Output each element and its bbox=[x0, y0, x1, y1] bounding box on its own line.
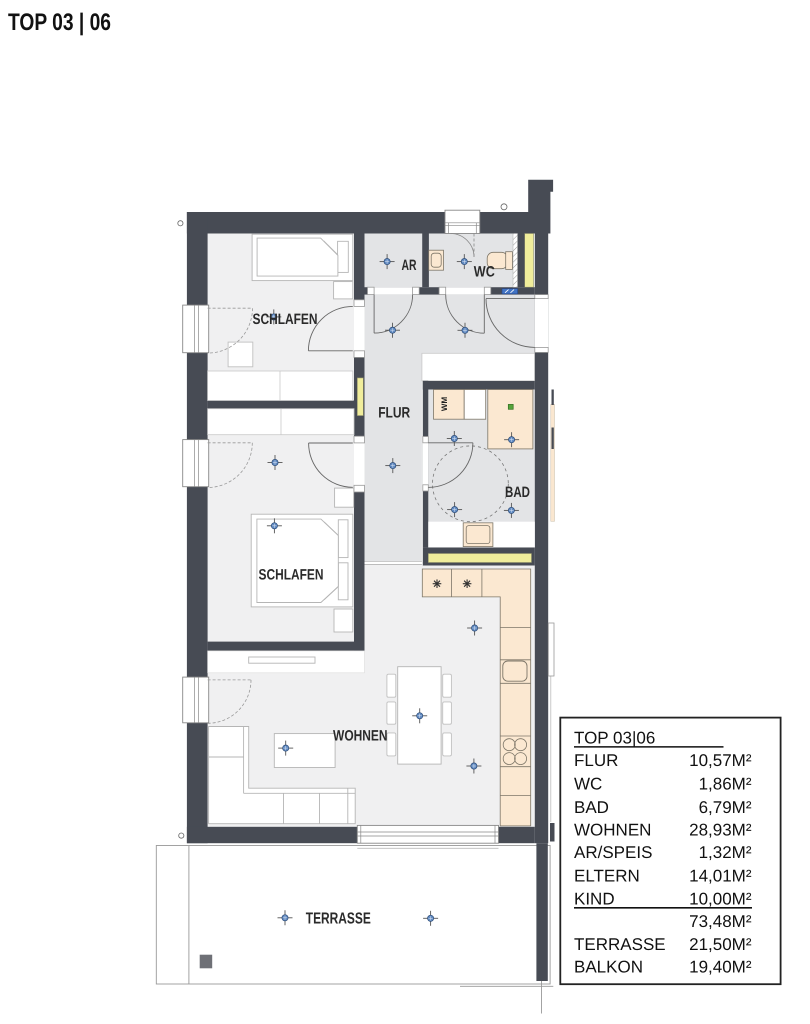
svg-text:10,57M²: 10,57M² bbox=[689, 751, 752, 770]
svg-text:19,40M²: 19,40M² bbox=[689, 958, 752, 977]
svg-text:BAD: BAD bbox=[574, 798, 609, 817]
svg-text:FLUR: FLUR bbox=[574, 751, 618, 770]
svg-text:KIND: KIND bbox=[574, 890, 615, 909]
svg-text:WC: WC bbox=[574, 774, 602, 793]
svg-text:10,00M²: 10,00M² bbox=[689, 890, 752, 909]
svg-text:28,93M²: 28,93M² bbox=[689, 820, 752, 839]
svg-text:6,79M²: 6,79M² bbox=[699, 798, 752, 817]
svg-text:FLUR: FLUR bbox=[378, 404, 410, 421]
svg-text:WM: WM bbox=[440, 397, 449, 412]
svg-text:1,32M²: 1,32M² bbox=[699, 843, 752, 862]
svg-text:TOP 03|06: TOP 03|06 bbox=[574, 728, 655, 747]
svg-text:AR/SPEIS: AR/SPEIS bbox=[574, 843, 652, 862]
svg-text:14,01M²: 14,01M² bbox=[689, 867, 752, 886]
svg-text:ELTERN: ELTERN bbox=[574, 867, 640, 886]
svg-text:AR: AR bbox=[402, 257, 417, 274]
svg-text:1,86M²: 1,86M² bbox=[699, 774, 752, 793]
svg-text:BAD: BAD bbox=[505, 484, 530, 501]
svg-text:WC: WC bbox=[474, 264, 495, 281]
svg-text:21,50M²: 21,50M² bbox=[689, 935, 752, 954]
svg-text:TERRASSE: TERRASSE bbox=[574, 935, 666, 954]
svg-text:WOHNEN: WOHNEN bbox=[333, 727, 388, 744]
svg-text:TOP 03 | 06: TOP 03 | 06 bbox=[8, 9, 111, 36]
svg-text:BALKON: BALKON bbox=[574, 958, 643, 977]
svg-text:SCHLAFEN: SCHLAFEN bbox=[253, 311, 318, 328]
svg-text:73,48M²: 73,48M² bbox=[689, 912, 752, 931]
svg-text:WOHNEN: WOHNEN bbox=[574, 820, 651, 839]
svg-text:TERRASSE: TERRASSE bbox=[306, 911, 371, 928]
svg-text:SCHLAFEN: SCHLAFEN bbox=[259, 567, 324, 584]
